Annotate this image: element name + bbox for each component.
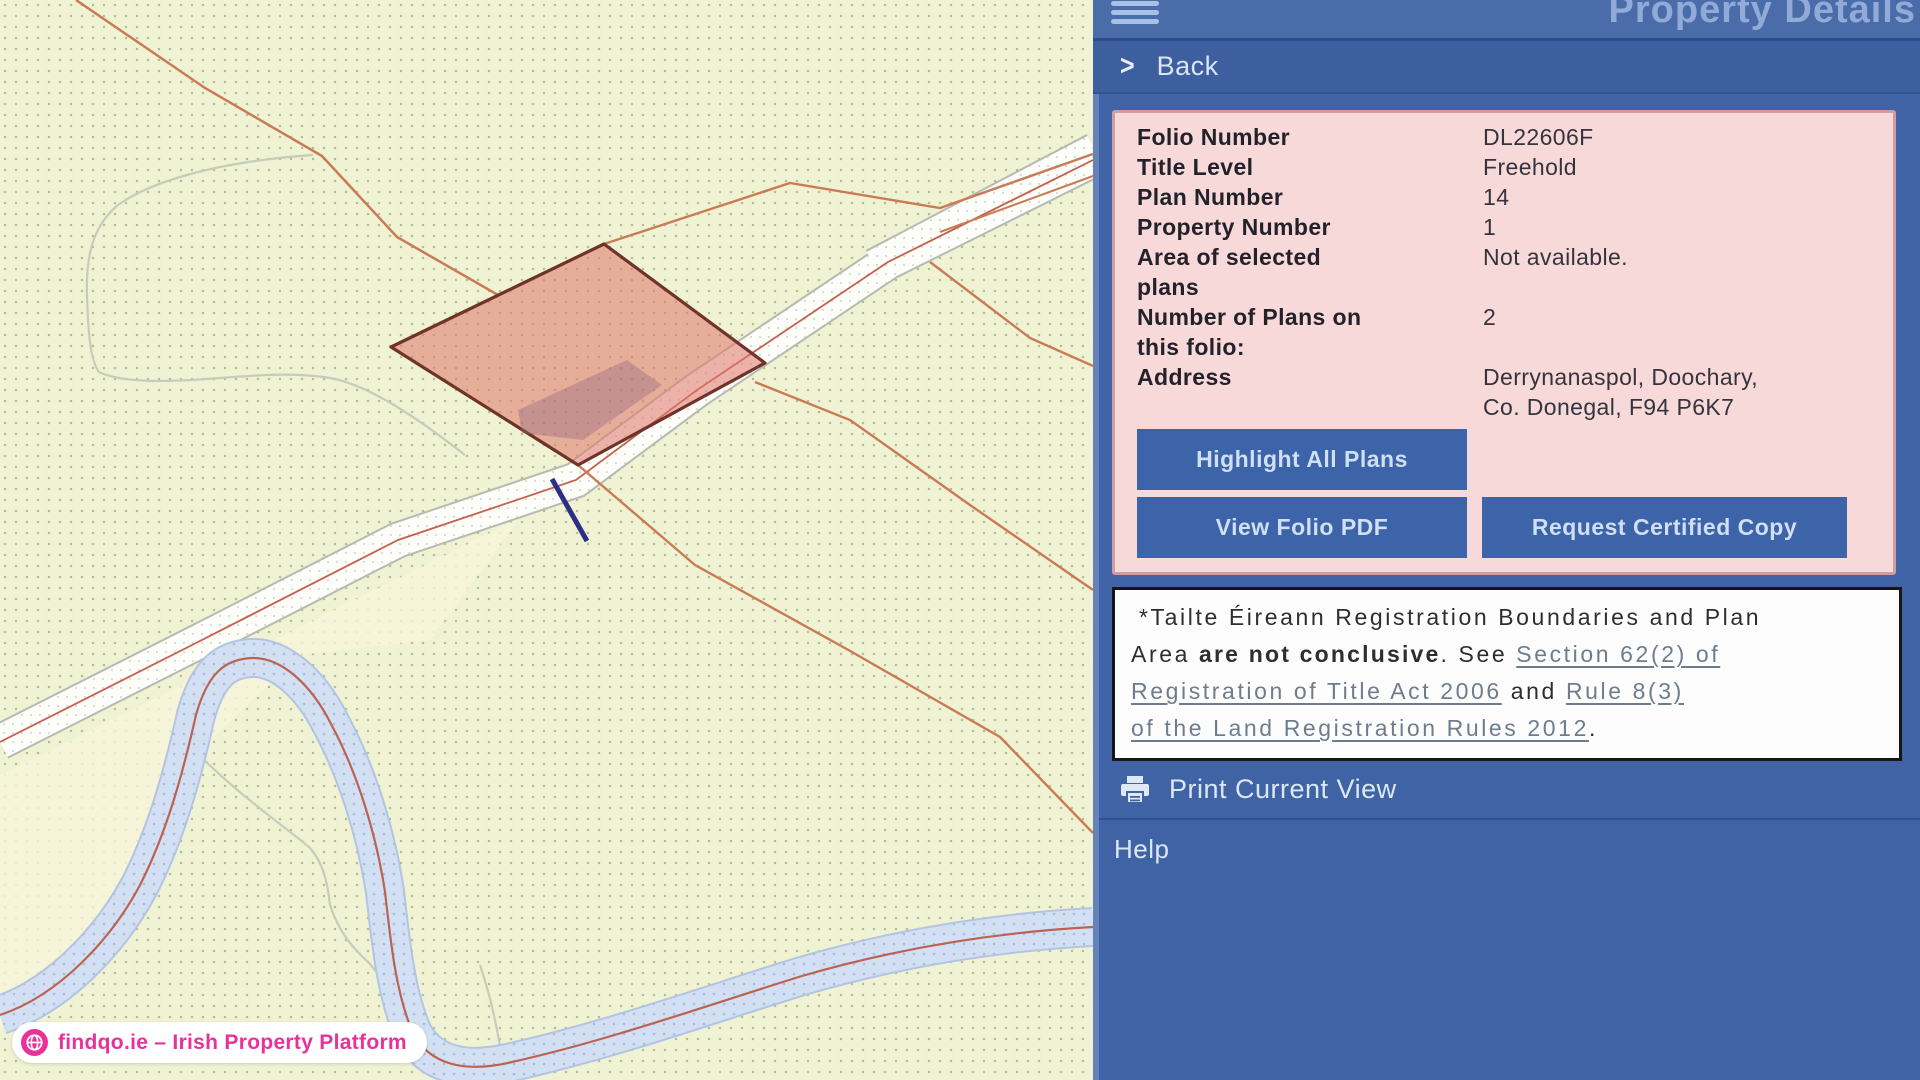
detail-row: Plan Number 14 — [1137, 182, 1875, 212]
pdf-buttons-row: View Folio PDF Request Certified Copy — [1137, 497, 1875, 558]
map-canvas[interactable]: findqo.ie – Irish Property Platform — [0, 0, 1093, 1080]
globe-icon — [21, 1029, 48, 1056]
help-label: Help — [1114, 834, 1169, 865]
detail-value: Not available. — [1483, 242, 1875, 302]
detail-value-address: Derrynanaspol, Doochary, Co. Donegal, F9… — [1483, 362, 1788, 422]
detail-row: Area of selected plans Not available. — [1137, 242, 1875, 302]
detail-label: Title Level — [1137, 152, 1389, 182]
back-button[interactable]: > Back — [1093, 41, 1920, 94]
disclaimer-plain-text: . — [1589, 715, 1598, 741]
app-window: findqo.ie – Irish Property Platform Prop… — [0, 0, 1920, 1080]
detail-row: Address Derrynanaspol, Doochary, Co. Don… — [1137, 362, 1875, 422]
disclaimer-bold-text: are not conclusive — [1199, 641, 1441, 667]
map-dot-texture — [0, 0, 1093, 1080]
detail-label: Area of selected plans — [1137, 242, 1389, 302]
boundaries-disclaimer: *Tailte Éireann Registration Boundaries … — [1112, 587, 1902, 761]
detail-label: Folio Number — [1137, 122, 1389, 152]
folio-details-panel: Folio Number DL22606F Title Level Freeho… — [1112, 110, 1896, 575]
hamburger-menu-icon[interactable] — [1111, 1, 1159, 28]
property-details-sidebar: Property Details > Back Folio Number DL2… — [1093, 0, 1920, 1080]
detail-label: Number of Plans on this folio: — [1137, 302, 1389, 362]
page-title: Property Details — [1609, 0, 1916, 32]
detail-value: 14 — [1483, 182, 1875, 212]
highlight-all-plans-button[interactable]: Highlight All Plans — [1137, 429, 1467, 490]
back-label: Back — [1157, 51, 1219, 82]
help-button[interactable]: Help — [1099, 820, 1920, 878]
view-folio-pdf-button[interactable]: View Folio PDF — [1137, 497, 1467, 558]
disclaimer-link[interactable]: Registration of Title Act 2006 — [1131, 678, 1502, 704]
request-certified-copy-button[interactable]: Request Certified Copy — [1482, 497, 1847, 558]
back-chevron-icon: > — [1120, 50, 1135, 83]
detail-label: Plan Number — [1137, 182, 1389, 212]
disclaimer-link[interactable]: of the Land Registration Rules 2012 — [1131, 715, 1589, 741]
disclaimer-plain-text: . See — [1441, 641, 1517, 667]
disclaimer-text: *Tailte Éireann Registration Boundaries … — [1131, 604, 1761, 741]
disclaimer-link[interactable]: Section 62(2) of — [1516, 641, 1720, 667]
printer-icon — [1120, 776, 1150, 804]
detail-value: 1 — [1483, 212, 1875, 242]
disclaimer-plain-text: *Tailte Éireann Registration Boundaries … — [1139, 604, 1761, 630]
print-current-view-label: Print Current View — [1169, 774, 1397, 805]
print-current-view-button[interactable]: Print Current View — [1099, 761, 1920, 820]
disclaimer-plain-text: and — [1502, 678, 1566, 704]
detail-label: Address — [1137, 362, 1389, 422]
map-svg — [0, 0, 1093, 1080]
sidebar-header: Property Details — [1093, 0, 1920, 41]
detail-value: Freehold — [1483, 152, 1875, 182]
detail-row: Property Number 1 — [1137, 212, 1875, 242]
brand-watermark: findqo.ie – Irish Property Platform — [12, 1022, 427, 1063]
detail-row: Number of Plans on this folio: 2 — [1137, 302, 1875, 362]
disclaimer-link[interactable]: Rule 8(3) — [1566, 678, 1684, 704]
brand-watermark-label: findqo.ie – Irish Property Platform — [58, 1031, 407, 1055]
detail-value: DL22606F — [1483, 122, 1875, 152]
sidebar-content: Folio Number DL22606F Title Level Freeho… — [1093, 94, 1920, 1080]
detail-value: 2 — [1483, 302, 1875, 362]
disclaimer-plain-text: Area — [1131, 641, 1199, 667]
detail-row: Title Level Freehold — [1137, 152, 1875, 182]
sidebar-empty-area — [1099, 878, 1920, 1080]
detail-row: Folio Number DL22606F — [1137, 122, 1875, 152]
detail-label: Property Number — [1137, 212, 1389, 242]
